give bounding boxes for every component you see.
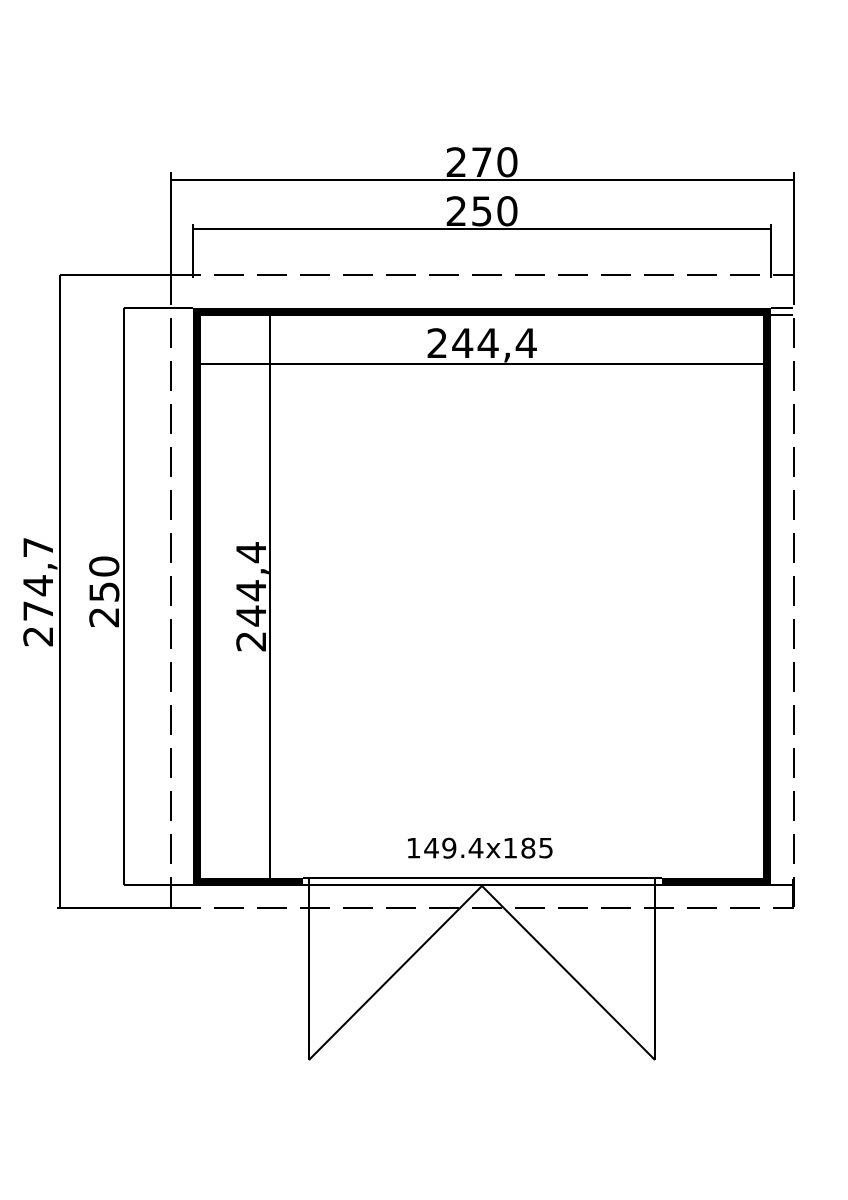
wall-right [763, 308, 771, 886]
dimension-lines [57, 172, 794, 908]
floor-plan-drawing: 270 250 244,4 274,7 250 244,4 149.4x185 [0, 0, 848, 1200]
label-overall-depth: 274,7 [17, 535, 63, 650]
label-interior-depth: 244,4 [230, 540, 276, 655]
wall-left [193, 308, 201, 886]
label-wall-width: 250 [444, 190, 520, 236]
double-door [303, 878, 662, 1060]
wall-bottom-right-segment [662, 878, 771, 886]
wall-top [193, 308, 771, 316]
label-overall-width: 270 [444, 141, 520, 187]
walls [193, 308, 771, 886]
dimension-labels: 270 250 244,4 274,7 250 244,4 149.4x185 [17, 141, 555, 865]
label-door-size: 149.4x185 [405, 832, 555, 865]
floor-plan-canvas: 270 250 244,4 274,7 250 244,4 149.4x185 [0, 0, 848, 1200]
door-swing-right [482, 886, 655, 1060]
wall-bottom-left-segment [193, 878, 303, 886]
door-swing-left [309, 886, 482, 1060]
label-wall-depth: 250 [83, 554, 129, 630]
label-interior-width: 244,4 [425, 322, 540, 368]
